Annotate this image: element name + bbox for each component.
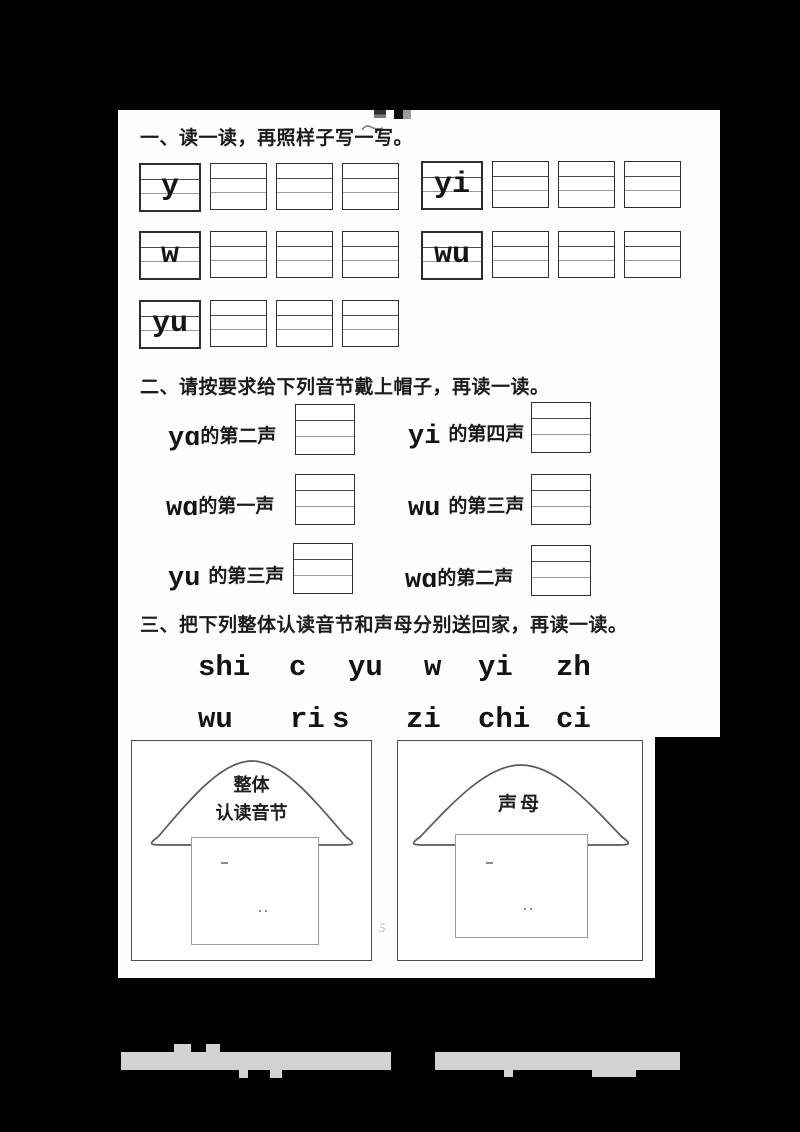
writing-row-y: y: [139, 163, 399, 212]
pinyin-writing-grid: [210, 163, 267, 210]
watermark-bar-left: [121, 1052, 391, 1070]
example-letter-yu: yu: [152, 309, 188, 339]
scan-artifact: [403, 110, 411, 119]
house-whole-syllables: 整体 认读音节: [131, 740, 372, 961]
pinyin-writing-grid: [492, 231, 549, 278]
house-initials: 声母: [397, 740, 643, 961]
house-title-line1: 声母: [398, 789, 642, 816]
tone-task-text: 的第二声: [437, 568, 513, 589]
tone-answer-grid: [531, 545, 591, 596]
pinyin-writing-grid: [624, 161, 681, 208]
pinyin-writing-grid: [558, 161, 615, 208]
syllable-zi: zi: [406, 703, 441, 736]
tone-task-syllable: yu: [168, 564, 200, 594]
tone-task-syllable: wɑ: [405, 566, 437, 596]
scan-artifact: [530, 908, 532, 910]
worksheet-page: 一、读一读，再照样子写一写。 y yi w wu: [0, 0, 800, 1132]
scan-artifact: [524, 908, 526, 910]
watermark-bar-right-descender: [592, 1069, 636, 1077]
section1-heading: 一、读一读，再照样子写一写。: [140, 123, 413, 150]
house-title-line1: 整体: [132, 771, 371, 797]
syllable-shi: shi: [198, 651, 250, 684]
writing-row-w: w: [139, 231, 399, 280]
tone-task-text: 的第二声: [200, 426, 276, 447]
pinyin-example-grid: y: [139, 163, 201, 212]
pinyin-writing-grid: [492, 161, 549, 208]
house-title-line2: 认读音节: [132, 799, 371, 825]
tone-task-text: 的第四声: [448, 424, 524, 445]
tone-task-text: 的第一声: [198, 496, 274, 517]
tone-task-syllable: yi: [408, 422, 440, 452]
syllable-ci: ci: [556, 703, 591, 736]
pinyin-writing-grid: [210, 231, 267, 278]
watermark-bar-right: [435, 1052, 680, 1070]
tone-answer-grid: [531, 474, 591, 525]
watermark-bar-left-ascender: [174, 1044, 191, 1053]
pinyin-writing-grid: [624, 231, 681, 278]
scan-artifact: [374, 110, 386, 118]
tone-answer-grid: [295, 474, 355, 525]
page-number: 5: [379, 920, 386, 936]
tone-task-yu3: yu的第三声: [168, 564, 284, 594]
scan-artifact: [259, 910, 261, 912]
tone-task-text: 的第三声: [208, 566, 284, 587]
pinyin-example-grid: yu: [139, 300, 201, 349]
syllable-chi: chi: [478, 703, 530, 736]
pinyin-example-grid: yi: [421, 161, 483, 210]
example-letter-yi: yi: [434, 170, 470, 200]
house-answer-box: [191, 837, 319, 945]
tone-answer-grid: [293, 543, 353, 594]
writing-row-yu: yu: [139, 300, 399, 349]
pinyin-writing-grid: [342, 231, 399, 278]
example-letter-wu: wu: [434, 240, 470, 270]
watermark-bar-right-descender: [504, 1069, 513, 1077]
pinyin-writing-grid: [276, 300, 333, 347]
pinyin-writing-grid: [276, 163, 333, 210]
pinyin-writing-grid: [342, 163, 399, 210]
pinyin-example-grid: w: [139, 231, 201, 280]
tone-task-ya2: yɑ的第二声: [168, 424, 276, 454]
syllable-yi: yi: [478, 651, 513, 684]
tone-task-wa1: wɑ的第一声: [166, 494, 274, 524]
tone-task-wu3: wu的第三声: [408, 494, 524, 524]
tone-task-syllable: yɑ: [168, 424, 200, 454]
example-letter-y: y: [161, 172, 179, 202]
writing-row-wu: wu: [421, 231, 681, 280]
tone-answer-grid: [295, 404, 355, 455]
pinyin-writing-grid: [210, 300, 267, 347]
pinyin-writing-grid: [342, 300, 399, 347]
watermark-bar-left-ascender: [206, 1044, 220, 1053]
house-answer-box: [455, 834, 588, 938]
scan-artifact: [394, 110, 403, 119]
watermark-bar-left-descender: [239, 1069, 248, 1078]
syllable-c: c: [289, 651, 306, 684]
tone-task-yi4: yi的第四声: [408, 422, 524, 452]
tone-task-syllable: wɑ: [166, 494, 198, 524]
syllable-s: s: [332, 703, 349, 736]
scan-artifact: [221, 862, 228, 864]
scan-artifact: [265, 910, 267, 912]
watermark-bar-left-descender: [270, 1069, 282, 1078]
syllable-wu: wu: [198, 703, 233, 736]
scan-artifact: [486, 862, 493, 864]
syllable-w: w: [424, 651, 441, 684]
section3-heading: 三、把下列整体认读音节和声母分别送回家，再读一读。: [140, 610, 628, 637]
tone-task-text: 的第三声: [448, 496, 524, 517]
pinyin-writing-grid: [558, 231, 615, 278]
section2-heading: 二、请按要求给下列音节戴上帽子，再读一读。: [140, 372, 550, 399]
pinyin-example-grid: wu: [421, 231, 483, 280]
example-letter-w: w: [161, 240, 179, 270]
syllable-yu: yu: [348, 651, 383, 684]
syllable-zh: zh: [556, 651, 591, 684]
syllable-ri: ri: [290, 703, 325, 736]
writing-row-yi: yi: [421, 161, 681, 210]
pinyin-writing-grid: [276, 231, 333, 278]
house-roof: [144, 749, 360, 847]
tone-answer-grid: [531, 402, 591, 453]
tone-task-syllable: wu: [408, 494, 440, 524]
tone-task-wa2: wɑ的第二声: [405, 566, 513, 596]
